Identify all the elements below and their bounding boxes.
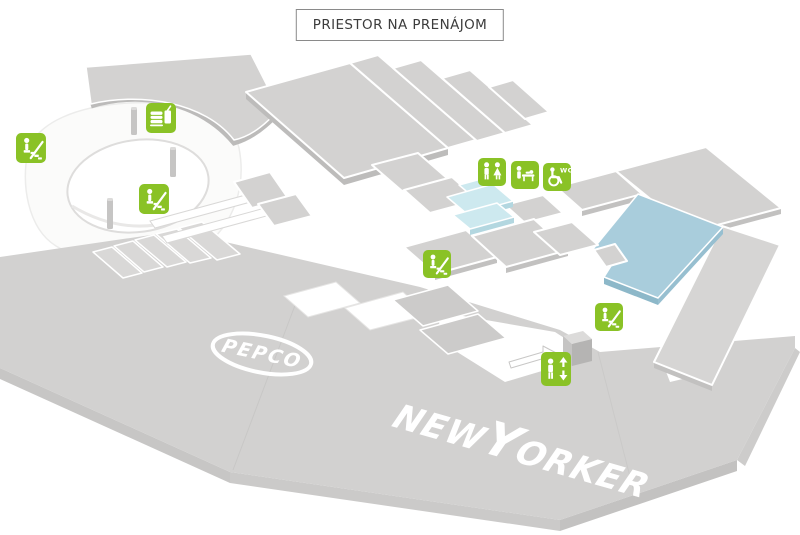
food-court-icon[interactable] [146, 103, 176, 133]
escalator-icon[interactable] [423, 250, 451, 278]
column-pillar-cap [107, 198, 113, 201]
elevator-icon[interactable] [541, 352, 571, 386]
column-pillar [131, 108, 137, 135]
column-pillar [107, 199, 113, 229]
column-pillar-cap [170, 147, 176, 150]
wc-icon[interactable] [478, 158, 506, 186]
mall-floor-map: PEPCO NEWYORKER [0, 0, 800, 535]
column-pillar [170, 148, 176, 177]
baby-changing-icon[interactable] [511, 161, 539, 189]
column-pillar-cap [131, 107, 137, 110]
escalator-icon[interactable] [595, 303, 623, 331]
accessible-wc-label: WC [560, 167, 573, 175]
escalator-icon[interactable] [139, 184, 169, 214]
mall-map-page: PRIESTOR NA PRENÁJOM [0, 0, 800, 535]
escalator-icon[interactable] [16, 133, 46, 163]
accessible-wc-icon[interactable]: WC [543, 163, 573, 191]
